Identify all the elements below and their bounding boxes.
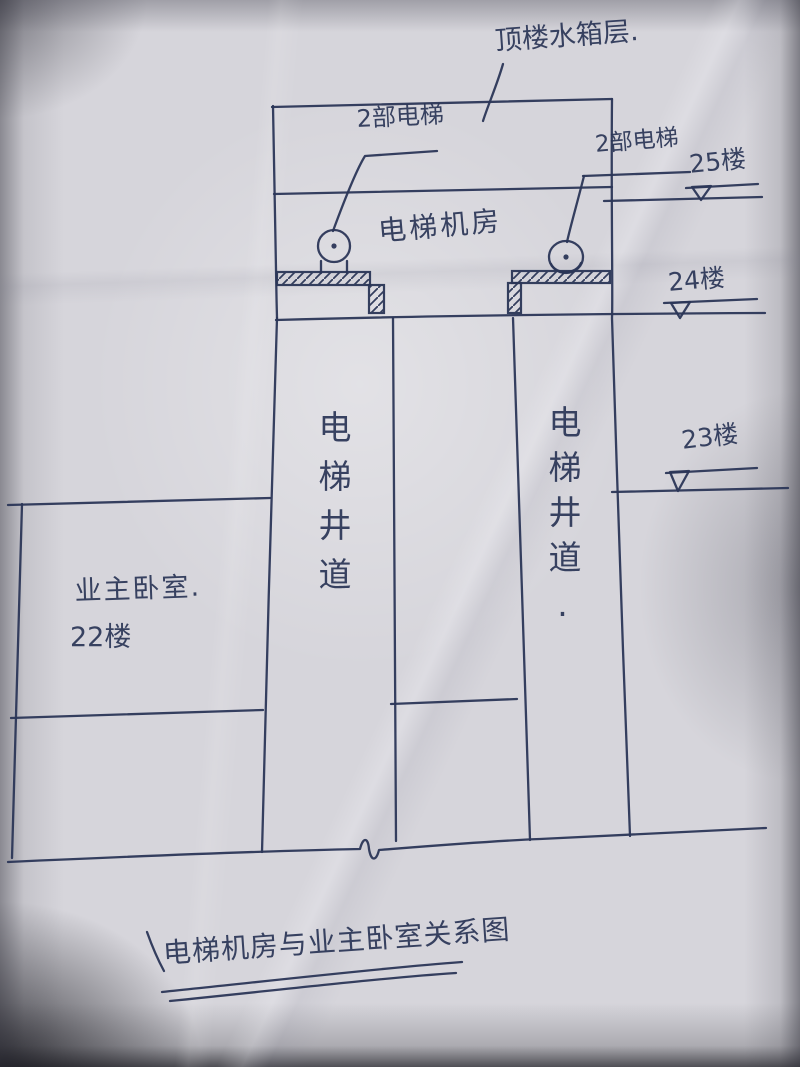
level-symbol-25 — [604, 184, 762, 201]
shaft-label-right: 电梯井道. — [543, 405, 581, 636]
pulley-left-icon — [318, 230, 350, 273]
shaft-right-walls — [513, 318, 530, 840]
level-symbol-23 — [612, 468, 788, 492]
mid-floor-line — [391, 699, 517, 704]
bedroom-outline — [8, 498, 270, 858]
bedroom-floor-label: 22楼 — [70, 622, 131, 653]
sketch-lines — [0, 0, 800, 1067]
floor-25-marker-label: 25楼 — [688, 145, 748, 180]
machine-beam-left — [277, 272, 384, 313]
shaft-label-left: 电梯井道 — [313, 410, 351, 606]
pulley-right-icon — [549, 241, 583, 273]
floor-24-marker-label: 24楼 — [667, 264, 726, 298]
bedroom-label: 业主卧室. — [74, 572, 202, 607]
right-outer-wall — [612, 99, 630, 836]
elevators-count-label-left: 2部电梯 — [356, 101, 445, 133]
photo-of-hand-drawn-diagram: 顶楼水箱层. 2部电梯 2部电梯 电梯机房 25楼 24楼 23楼 电梯井道 电… — [0, 0, 800, 1067]
ground-line — [8, 828, 766, 862]
machine-beam-right — [508, 271, 610, 313]
